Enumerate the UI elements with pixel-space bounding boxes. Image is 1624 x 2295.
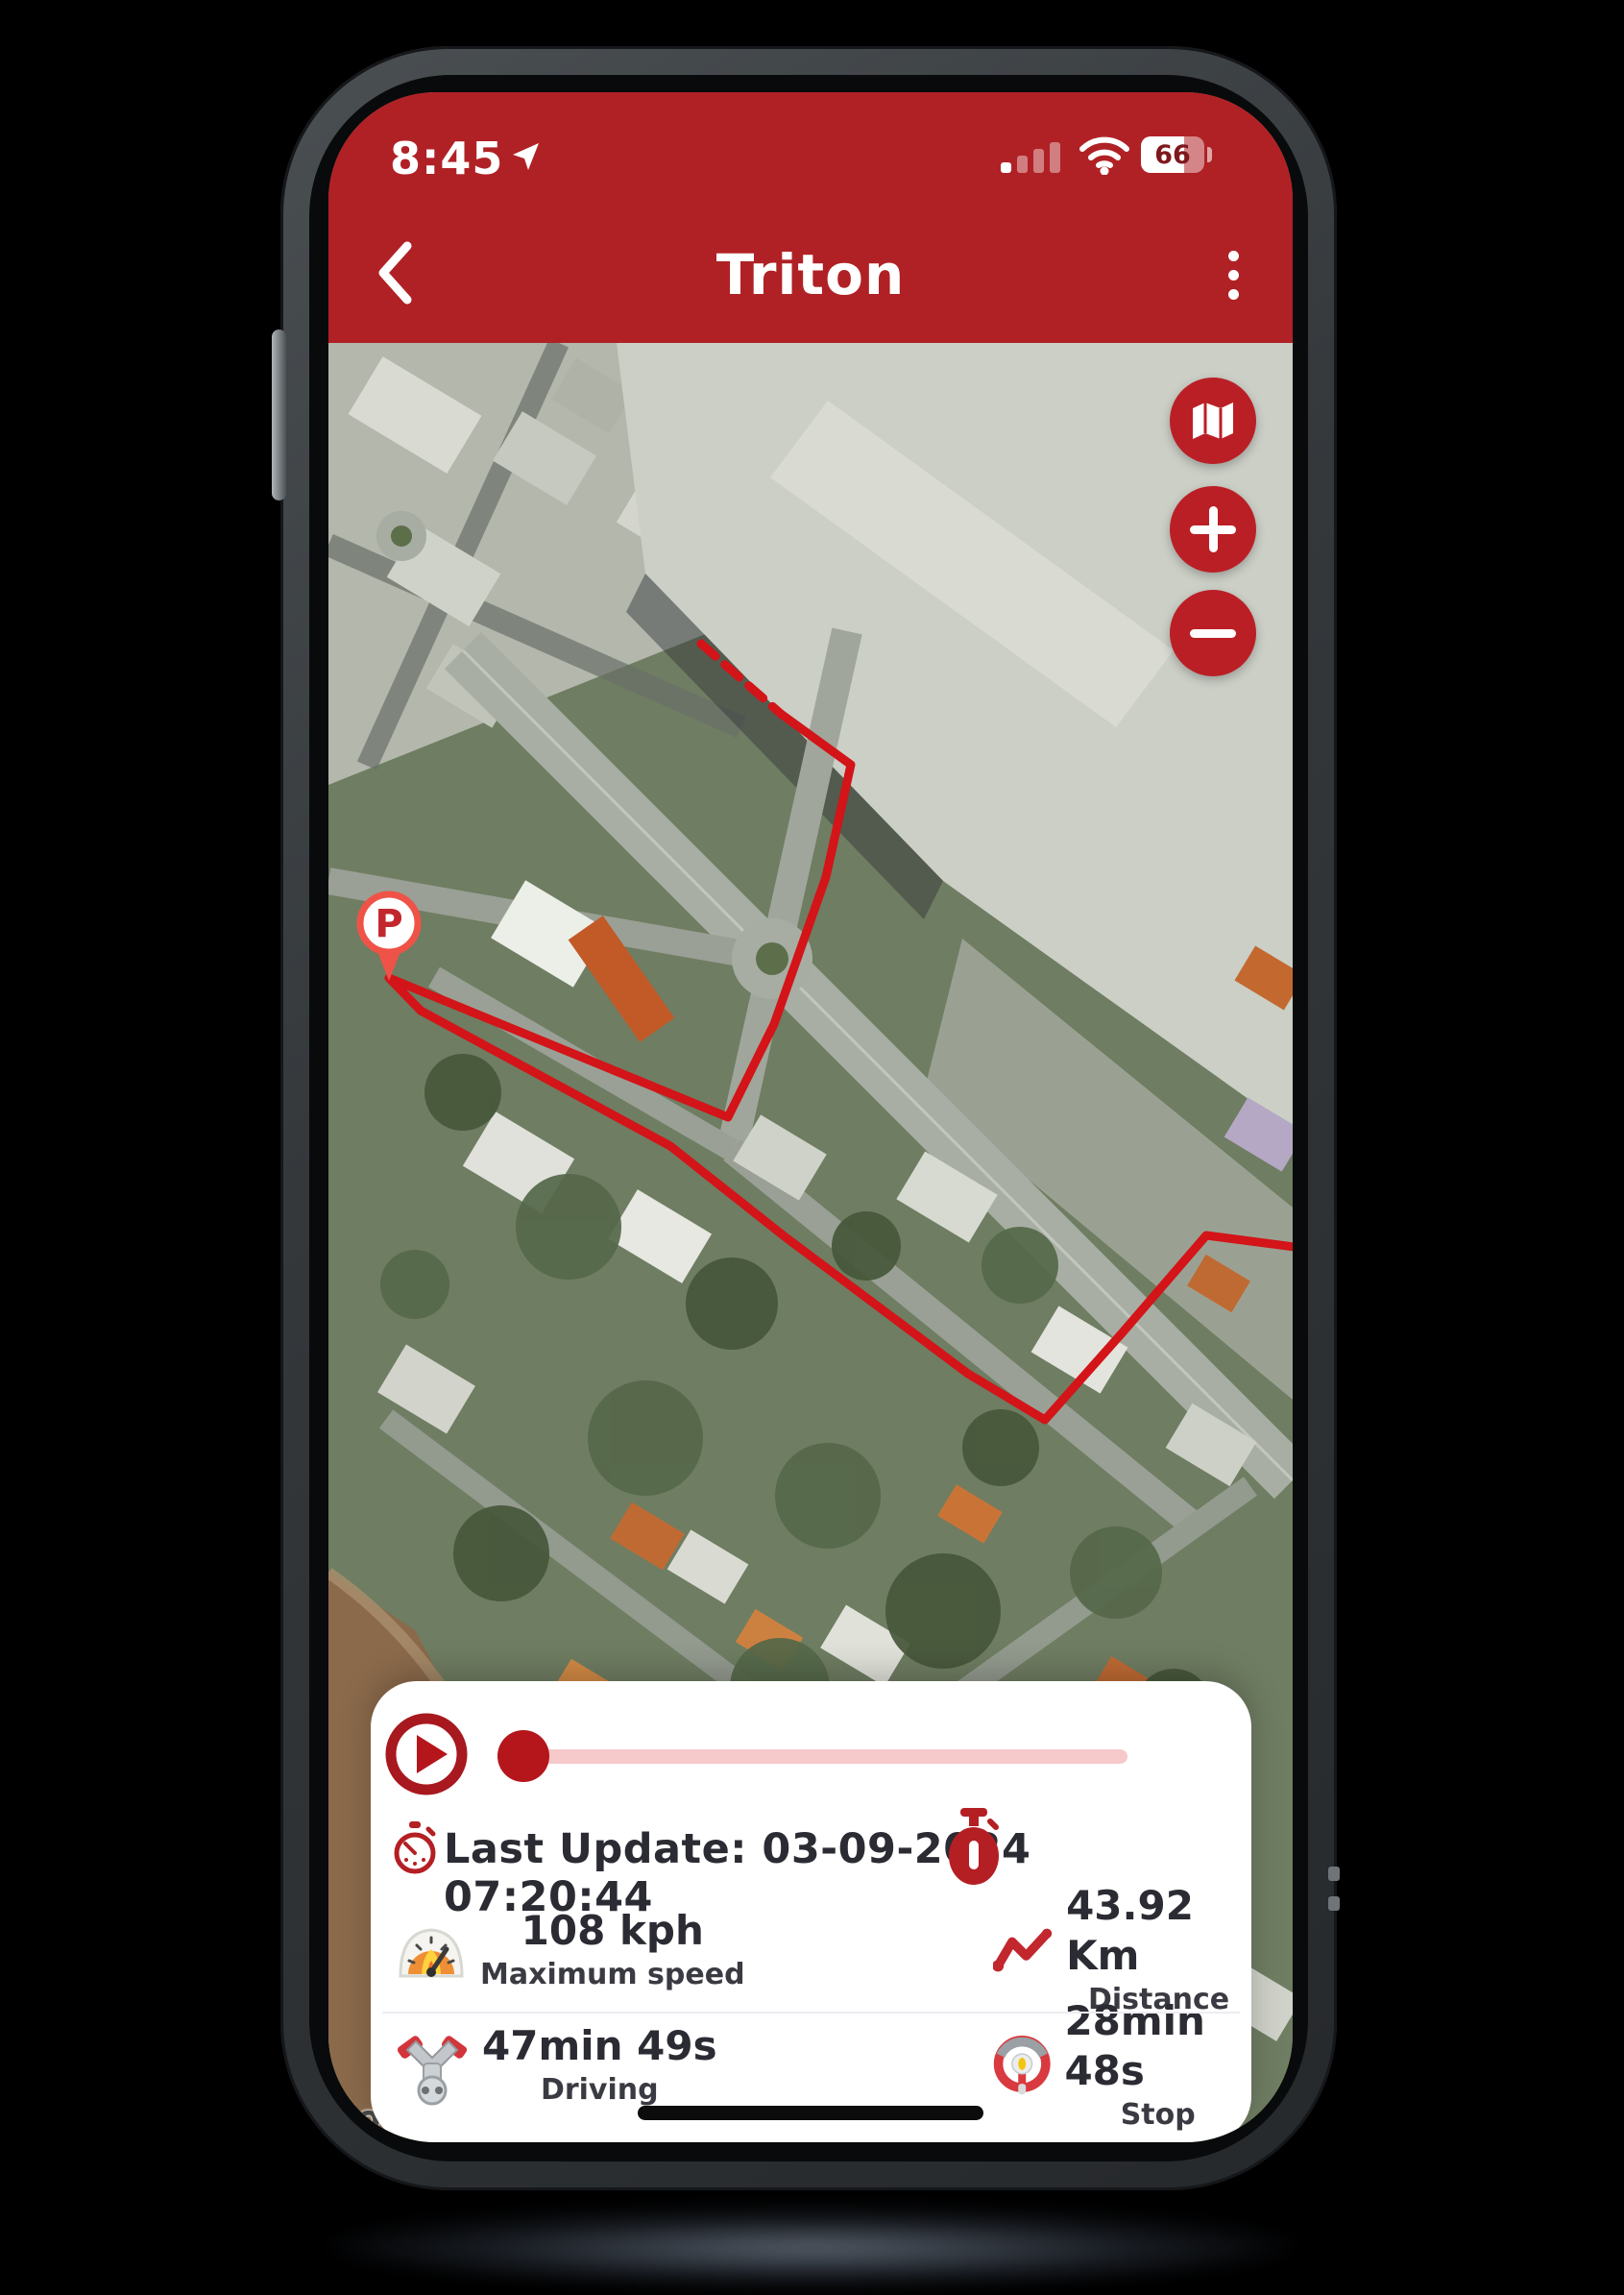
page-title: Triton <box>328 242 1293 307</box>
stat-label: Driving <box>541 2071 659 2110</box>
plus-icon <box>1209 506 1218 552</box>
status-time: 8:45 <box>390 133 503 184</box>
volume-button <box>272 330 286 501</box>
battery-indicator: 66 <box>1141 136 1204 173</box>
map-type-button[interactable] <box>1170 378 1256 464</box>
stat-label: Stop <box>1121 2096 1196 2135</box>
stat-value: 43.92 Km <box>1066 1881 1251 1981</box>
stage: Google P <box>0 0 1624 2295</box>
parking-marker-label: P <box>375 902 402 946</box>
battery-percent: 66 <box>1154 140 1191 170</box>
stat-value: 108 kph <box>521 1906 704 1956</box>
wifi-icon <box>1078 134 1131 175</box>
steering-wheel-icon <box>993 2025 1051 2106</box>
app-screen: Google P <box>328 92 1293 2142</box>
app-header: 8:45 66 <box>328 92 1293 343</box>
timer-filled-icon <box>945 1808 1003 1889</box>
parking-marker[interactable]: P <box>355 889 423 985</box>
last-update-row: Last Update: 03-09-2024 07:20:44 <box>371 1806 1251 1892</box>
cellular-signal-icon <box>1001 138 1064 173</box>
overflow-menu-button[interactable] <box>1204 236 1262 313</box>
battery-nub <box>1207 147 1212 162</box>
trip-summary-sheet: Last Update: 03-09-2024 07:20:44 <box>371 1681 1251 2142</box>
stat-max-speed: 108 kph Maximum speed <box>396 1902 745 1998</box>
engine-icon <box>396 2025 469 2106</box>
home-indicator[interactable] <box>638 2106 983 2120</box>
slider-track[interactable] <box>497 1749 1127 1764</box>
stat-stop-time: 28min 48s Stop <box>993 2017 1251 2113</box>
slider-thumb[interactable] <box>497 1730 549 1782</box>
playback-slider[interactable] <box>497 1737 1127 1775</box>
stats-divider <box>382 2012 1240 2014</box>
play-button[interactable] <box>382 1710 471 1798</box>
speedometer-icon <box>396 1918 467 1982</box>
play-icon <box>382 1710 471 1798</box>
antenna-band <box>1328 1896 1340 1911</box>
kebab-dot <box>1228 289 1239 300</box>
antenna-band <box>1328 1867 1340 1881</box>
stat-distance: 43.92 Km Distance <box>993 1902 1251 1998</box>
zoom-out-button[interactable] <box>1170 590 1256 676</box>
stat-label: Maximum speed <box>480 1956 745 1994</box>
minus-icon <box>1190 629 1236 638</box>
route-distance-icon <box>993 1924 1053 1976</box>
stopwatch-outline-icon <box>392 1821 438 1875</box>
stat-driving-time: 47min 49s Driving <box>396 2017 717 2113</box>
phone-mockup: Google P <box>280 46 1337 2190</box>
stat-value: 47min 49s <box>482 2021 717 2071</box>
phone-drop-shadow <box>317 2205 1306 2287</box>
kebab-dot <box>1228 270 1239 281</box>
map-icon <box>1190 400 1236 442</box>
location-arrow-icon <box>509 140 542 173</box>
zoom-in-button[interactable] <box>1170 486 1256 573</box>
kebab-dot <box>1228 251 1239 261</box>
